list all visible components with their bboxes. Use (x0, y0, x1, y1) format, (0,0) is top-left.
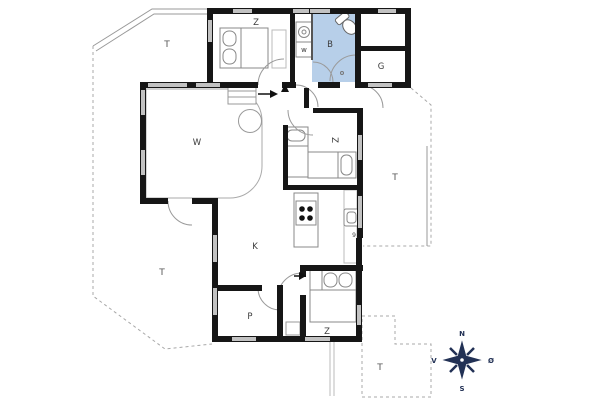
round-table (239, 110, 262, 133)
window (378, 9, 396, 13)
window (141, 150, 145, 175)
wardrobe (272, 30, 286, 68)
window (148, 83, 187, 87)
floorplan: T T T T Z w B G W Z K 9 P Z N Ø S V (0, 0, 600, 400)
room-label-pantry: P (247, 312, 252, 322)
room-label-bedroom-middle: Z (329, 137, 339, 143)
compass-label-south: S (459, 385, 464, 393)
stairs-arrow (258, 90, 278, 98)
washing-machine-icon (296, 22, 312, 42)
window (358, 196, 362, 228)
compass-label-east: Ø (488, 357, 494, 365)
wall-segment (212, 198, 218, 342)
window (213, 235, 217, 262)
window (293, 9, 309, 13)
bed-middle-horizontal (308, 152, 356, 178)
hall-cabinet (286, 322, 300, 335)
wall-segment (277, 285, 283, 342)
room-label-bedroom-top: Z (253, 18, 259, 28)
window (232, 337, 256, 341)
window (305, 337, 330, 341)
room-label-kitchen: K (252, 242, 258, 252)
wall-segment (140, 198, 168, 204)
wall-segment (290, 14, 295, 82)
terrace-bottom-outline (362, 316, 431, 397)
wall-segment (358, 46, 405, 51)
window (357, 305, 361, 325)
living-room-inner-outline (146, 89, 262, 198)
wall-segment (313, 108, 363, 113)
wall-segment (304, 88, 309, 108)
walls (140, 8, 411, 342)
pergola-edge-inner (96, 14, 207, 51)
terrace-label-right: T (391, 173, 398, 183)
door-arc-side-exit (360, 85, 383, 108)
wall-segment (283, 185, 363, 190)
window (233, 9, 252, 13)
wall-segment (300, 295, 306, 342)
wall-segment (356, 238, 362, 342)
arrows (258, 84, 306, 280)
window (358, 135, 362, 160)
door-arc-pantry (258, 288, 280, 310)
room-label-bedroom-bottom: Z (324, 327, 330, 337)
wall-segment (318, 82, 340, 88)
room-label-utility: w (301, 46, 307, 54)
wall-segment (212, 285, 262, 291)
room-label-living: W (193, 138, 202, 148)
door-arc-terrace (168, 201, 192, 225)
wall-segment (311, 14, 313, 60)
terrace-right-outline (363, 88, 431, 246)
window (213, 288, 217, 315)
room-label-bathroom: B (327, 40, 333, 50)
room-label-guest: G (378, 62, 385, 72)
compass-label-north: N (459, 330, 465, 338)
kitchen-island (294, 193, 318, 247)
pergola-edge-outer (93, 9, 207, 46)
window (310, 9, 330, 13)
wall-segment (303, 265, 363, 271)
bed-bottom-bedroom (310, 270, 356, 322)
terrace-label-top-left: T (163, 40, 170, 50)
wall-segment (283, 125, 288, 190)
bed-top-bedroom (220, 28, 268, 68)
sink-icon (344, 209, 359, 226)
compass-center (460, 358, 465, 363)
appliance-mark: 9 (352, 232, 356, 239)
window (208, 20, 212, 42)
compass-label-west: V (431, 357, 437, 365)
floorplan-drawing: T T T T Z w B G W Z K 9 P Z N Ø S V (0, 0, 600, 400)
window (368, 83, 392, 87)
wall-segment (405, 8, 411, 88)
terrace-label-bottom-left: T (158, 268, 165, 278)
walkway-lines (330, 342, 334, 396)
window (141, 90, 145, 115)
terrace-label-bottom-right: T (376, 363, 383, 373)
window (196, 83, 220, 87)
compass-rose (441, 339, 483, 381)
